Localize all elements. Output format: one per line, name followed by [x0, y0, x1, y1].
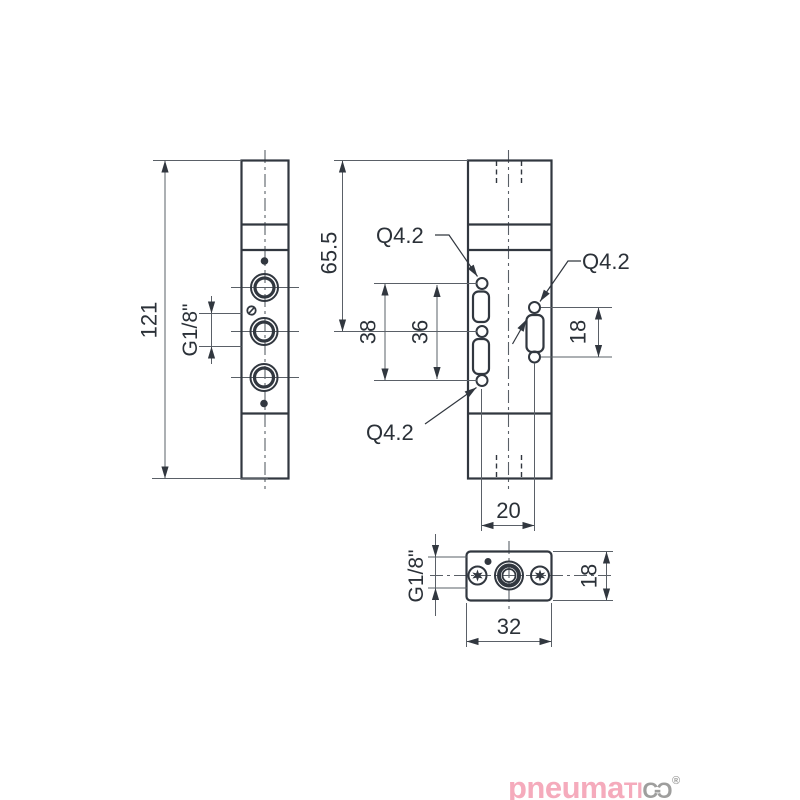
screw-dot [261, 257, 269, 265]
registered-trademark-icon: ® [672, 775, 680, 787]
dim-32-label: 32 [497, 614, 521, 639]
dim-g18-front-label: G1/8" [179, 304, 202, 357]
screw-dot [485, 558, 492, 565]
hole-label-right: Q4.2 [582, 249, 630, 274]
dim-38-label: 38 [355, 320, 380, 344]
hole-leaders [425, 235, 581, 424]
mount-hole [477, 375, 488, 386]
slot [473, 292, 489, 323]
mount-hole [477, 278, 488, 289]
side-view [468, 150, 552, 489]
screw-dot [260, 400, 268, 408]
logo-text-caps: TI [624, 778, 643, 800]
slot [527, 315, 544, 352]
dim-18-bottom-label: 18 [576, 564, 601, 588]
mount-hole [477, 326, 488, 337]
slot [473, 339, 489, 374]
hole-label-top: Q4.2 [376, 223, 424, 248]
dim-20-label: 20 [496, 498, 520, 523]
dim-121 [152, 161, 268, 479]
hole-label-bottom: Q4.2 [366, 420, 414, 445]
leader-line [540, 261, 581, 302]
logo-connector: - [654, 777, 661, 800]
mount-hole [529, 302, 540, 313]
leader-line [435, 235, 478, 277]
dim-g18-bottom-label: G1/8" [405, 550, 428, 603]
front-view [231, 150, 299, 489]
pneumatico-logo: pneumaTIC-Ɔ® [508, 761, 800, 800]
dim-121-label: 121 [136, 302, 161, 339]
dim-18-side-label: 18 [565, 320, 590, 344]
drawing-canvas: 121 G1/8" 65.5 [0, 0, 800, 800]
side-body-outline [468, 161, 552, 479]
dim-36-label: 36 [407, 320, 432, 344]
mount-hole [529, 352, 540, 363]
slot-pointer-arrow [513, 320, 527, 345]
tilted-screw [247, 306, 255, 314]
technical-drawing: 121 G1/8" 65.5 [0, 0, 800, 800]
dim-65-5-label: 65.5 [316, 232, 341, 275]
logo-text-main: pneuma [508, 770, 624, 800]
dim-g18-front [199, 296, 242, 364]
